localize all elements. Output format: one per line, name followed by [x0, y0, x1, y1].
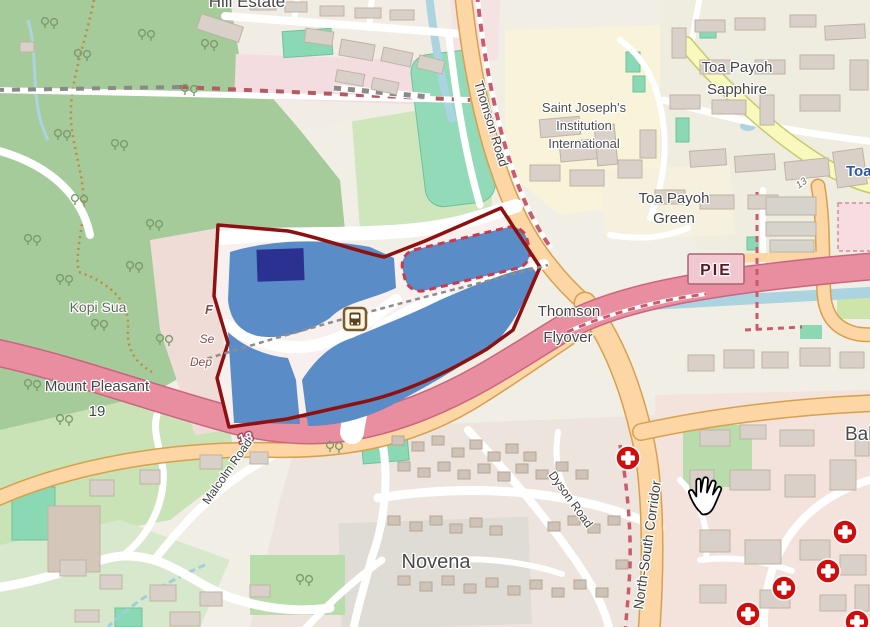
label-toa-payoh-sapphire-2: Sapphire: [707, 81, 767, 98]
label-toa-payoh-green-1: Toa Payoh: [639, 190, 710, 207]
label-thomson-flyover-2: Flyover: [543, 329, 592, 346]
label-balestier: Bal: [845, 424, 870, 445]
label-thomson-flyover-1: Thomson: [538, 303, 601, 320]
label-construction-partial-3: Dep: [190, 355, 212, 369]
label-saint-josephs-2: Institution: [556, 118, 612, 133]
hospital-cross-icon[interactable]: [833, 520, 857, 544]
label-mount-pleasant-19: 19: [89, 403, 106, 420]
label-kopi-sua: Kopi Sua: [70, 299, 127, 315]
hospital-cross-icon[interactable]: [816, 559, 840, 583]
hospital-cross-icon[interactable]: [616, 446, 640, 470]
label-toa-payoh-green-2: Green: [653, 210, 695, 227]
hospital-cross-icon[interactable]: [845, 610, 869, 627]
pie-road-shield: PIE: [688, 254, 744, 284]
label-construction-partial-1: F: [205, 302, 214, 317]
label-toa-payoh-sapphire-1: Toa Payoh: [702, 59, 773, 76]
label-saint-josephs-1: Saint Joseph's: [542, 100, 627, 115]
label-hill-estate: Hill Estate: [209, 0, 286, 11]
bus-station-icon[interactable]: [344, 308, 366, 330]
label-novena: Novena: [402, 551, 472, 573]
selected-building-rect: [256, 248, 304, 282]
map-canvas[interactable]: PIE Hill Estate Thomson Road Saint Josep…: [0, 0, 870, 627]
label-mount-pleasant: Mount Pleasant: [45, 378, 150, 395]
map-viewport[interactable]: PIE Hill Estate Thomson Road Saint Josep…: [0, 0, 870, 627]
hospital-cross-icon[interactable]: [772, 576, 796, 600]
label-construction-partial-2: Se: [200, 332, 215, 346]
label-toa-payoh-station: Toa: [846, 163, 870, 180]
label-saint-josephs-3: International: [548, 136, 620, 151]
hospital-cross-icon[interactable]: [736, 602, 760, 626]
pie-shield-label: PIE: [700, 262, 732, 279]
